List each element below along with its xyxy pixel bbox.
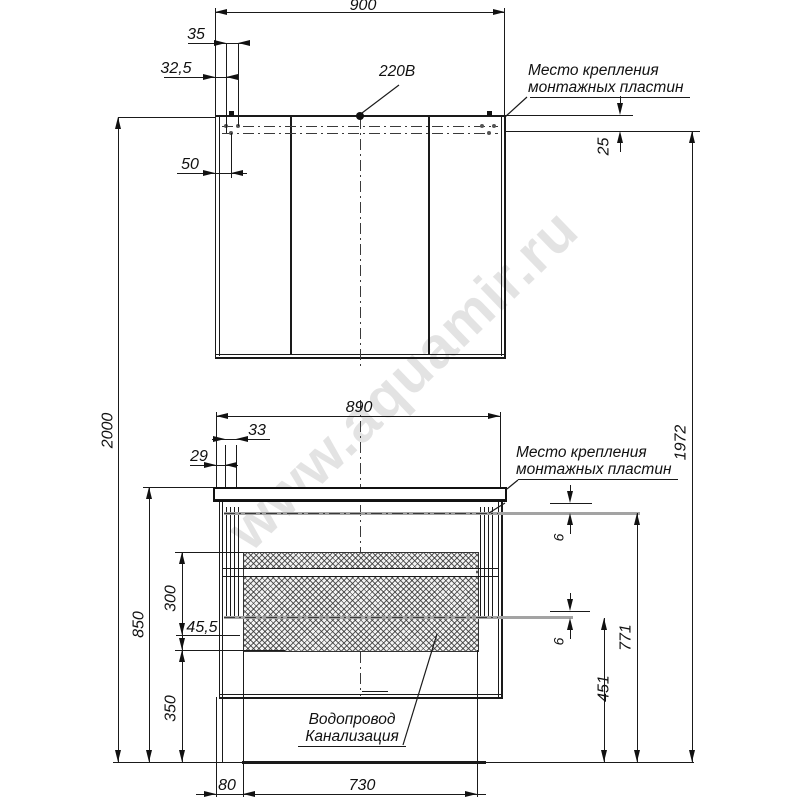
arrowhead — [215, 9, 227, 15]
extension-line — [238, 43, 239, 126]
mirror-right-inner-line — [501, 117, 502, 356]
dim-line — [692, 131, 693, 762]
arrowhead — [216, 413, 228, 419]
arrowhead — [225, 462, 237, 468]
slide-line — [238, 507, 239, 617]
arrowhead — [179, 552, 185, 564]
vanity-left-inner-line — [222, 502, 223, 698]
label-power-220v: 220В — [379, 63, 415, 80]
arrowhead — [203, 74, 215, 80]
arrowhead — [567, 491, 573, 503]
dim-771: 771 — [619, 620, 634, 656]
arrowhead — [203, 170, 215, 176]
dim-mirror-width: 900 — [340, 0, 386, 13]
mirror-right-outer-edge — [504, 115, 506, 358]
center-axis-mirror — [360, 118, 361, 367]
arrowhead — [465, 791, 477, 797]
drawer-divider-line — [222, 568, 499, 569]
extension-line — [500, 412, 501, 487]
extension-line — [243, 650, 244, 797]
extension-line — [143, 487, 213, 488]
vanity-left-outer-edge — [219, 502, 220, 698]
drawer-divider-line — [222, 576, 499, 577]
mount-hole-dot — [480, 124, 484, 128]
dim-80: 80 — [212, 778, 242, 793]
arrowhead — [179, 750, 185, 762]
mount-plate-axis-lower — [224, 617, 498, 618]
arrowhead — [115, 750, 121, 762]
arrowhead — [567, 513, 573, 525]
arrowhead — [601, 618, 607, 630]
note-line: монтажных пластин — [516, 461, 672, 478]
dim-line — [637, 513, 638, 762]
arrowhead — [146, 487, 152, 499]
arrowhead — [567, 599, 573, 611]
note-plumbing: Водопровод Канализация — [294, 711, 410, 745]
vanity-bottom-inner-line — [219, 694, 502, 695]
slide-line — [484, 507, 485, 617]
arrowhead — [214, 40, 226, 46]
slide-line — [492, 507, 493, 617]
dim-300: 300 — [164, 581, 179, 617]
note-mounting-plates-bottom: Место крепления монтажных пластин — [516, 444, 672, 478]
dim-451: 451 — [597, 671, 612, 707]
arrowhead — [634, 513, 640, 525]
note-underline — [530, 97, 690, 98]
dim-730: 730 — [338, 778, 386, 793]
dim-stem — [570, 593, 571, 599]
arrowhead — [146, 750, 152, 762]
dim-mount-height: 1972 — [674, 421, 689, 465]
slide-line — [480, 507, 481, 617]
vanity-bottom-edge — [219, 697, 503, 699]
dim-stem — [570, 485, 571, 491]
note-line: Водопровод — [309, 711, 396, 728]
arrowhead — [634, 750, 640, 762]
dim-6-bottom: 6 — [552, 634, 567, 650]
note-underline — [518, 479, 678, 480]
slide-line — [488, 507, 489, 617]
arrowhead — [179, 638, 185, 650]
extension-line — [477, 650, 478, 797]
note-line: монтажных пластин — [528, 79, 684, 96]
arrowhead — [238, 40, 250, 46]
arrowhead — [567, 618, 573, 630]
extension-line — [226, 43, 227, 133]
dim-29: 29 — [185, 449, 213, 464]
dim-45-5: 45,5 — [183, 620, 221, 635]
dim-25: 25 — [597, 135, 612, 159]
note-line: Место крепления — [516, 444, 647, 461]
mirror-door-divider-2 — [428, 117, 430, 354]
drain-notch — [362, 691, 388, 692]
extension-line — [505, 115, 633, 116]
dim-50: 50 — [177, 157, 203, 172]
floor-line-thick — [242, 761, 486, 764]
mirror-door-divider-1 — [290, 117, 292, 354]
dim-32-5: 32,5 — [155, 61, 197, 76]
note-line: Место крепления — [528, 62, 659, 79]
drawer-gap-band — [244, 569, 476, 576]
hatch-plumbing-zone — [243, 552, 479, 652]
dim-35: 35 — [182, 27, 210, 42]
leader-220v — [362, 85, 399, 113]
extension-line — [118, 117, 215, 118]
arrowhead — [179, 650, 185, 662]
arrowhead — [231, 170, 243, 176]
extension-line — [216, 412, 217, 487]
arrowhead — [213, 436, 225, 442]
arrowhead — [243, 791, 255, 797]
dim-line — [216, 416, 500, 417]
extension-line — [222, 697, 223, 762]
vanity-right-outer-edge — [501, 502, 503, 698]
arrowhead — [617, 103, 623, 115]
dim-stem — [570, 525, 571, 534]
vanity-right-inner-line — [498, 502, 499, 698]
extension-line — [231, 133, 232, 178]
extension-line — [550, 611, 590, 612]
arrowhead — [689, 131, 695, 143]
mount-hole-dot — [492, 124, 496, 128]
arrowhead — [689, 750, 695, 762]
dim-total-height: 2000 — [101, 409, 116, 453]
note-underline — [298, 746, 406, 747]
mount-plate-mark — [229, 111, 234, 116]
arrowhead — [226, 74, 238, 80]
extension-line — [215, 8, 216, 115]
dim-stem — [570, 630, 571, 639]
dim-6-top: 6 — [552, 530, 567, 546]
slide-line — [230, 507, 231, 617]
dim-line — [149, 487, 150, 762]
dim-350: 350 — [164, 691, 179, 727]
arrowhead — [493, 9, 505, 15]
arrowhead — [488, 413, 500, 419]
dim-line — [196, 794, 486, 795]
mirror-left-inner-line — [219, 117, 220, 356]
mirror-left-outer-edge — [215, 115, 216, 358]
extension-line — [175, 650, 285, 651]
arrowhead — [115, 117, 121, 129]
power-outlet-dot — [356, 112, 364, 120]
arrowhead — [601, 750, 607, 762]
dim-vanity-height: 850 — [132, 607, 147, 643]
dim-line — [118, 117, 119, 762]
leader-mount-bottom — [507, 480, 518, 489]
mount-plate-axis-upper — [224, 513, 498, 514]
slide-line — [226, 507, 227, 617]
note-mounting-plates-top: Место крепления монтажных пластин — [528, 62, 684, 96]
leader-mount-top — [505, 97, 527, 117]
dim-vanity-width: 890 — [336, 400, 382, 415]
dim-stem — [620, 143, 621, 152]
arrowhead — [617, 131, 623, 143]
countertop-inner-line — [215, 499, 505, 500]
note-line: Канализация — [305, 728, 399, 745]
extension-line — [504, 8, 505, 115]
extension-line — [550, 503, 592, 504]
extension-line — [505, 131, 700, 132]
slide-line — [234, 507, 235, 617]
technical-drawing: www.aquamir.ru 900 35 32,5 50 2000 — [0, 0, 800, 800]
dim-33: 33 — [243, 423, 271, 438]
extension-line — [175, 552, 243, 553]
mount-plate-mark — [487, 111, 492, 116]
mount-hole-dot — [487, 131, 491, 135]
